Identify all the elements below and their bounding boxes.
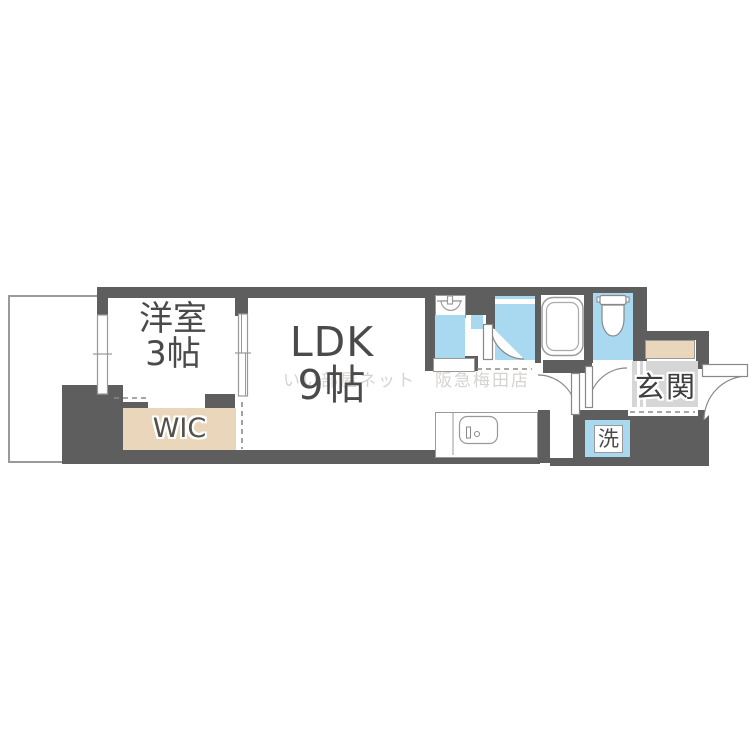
entrance-door-icon: [703, 365, 749, 421]
bathtub-room-floor: [541, 295, 584, 360]
laundry-label: 洗: [594, 426, 623, 454]
ldk-name: LDK: [248, 321, 416, 364]
wall-segment: [425, 287, 435, 363]
wic-label: WIC: [123, 415, 236, 443]
wall-segment: [465, 287, 495, 315]
hall-pocket-floor: [550, 410, 573, 458]
wall-segment: [538, 410, 550, 463]
ldk-label: LDK 9帖: [248, 321, 416, 406]
wall-segment: [205, 394, 235, 409]
entrance-step-band: [628, 407, 698, 416]
shoe-cabinet: [645, 340, 695, 359]
washroom-floor: [435, 315, 465, 360]
ldk-size: 9帖: [248, 364, 416, 407]
bath-anteroom-floor: [495, 296, 535, 360]
wall-segment: [584, 287, 593, 363]
bath-door-rail: [495, 299, 535, 304]
toilet-floor: [593, 293, 633, 360]
bedroom-name: 洋室: [106, 302, 240, 337]
washroom-floor-step: [471, 315, 483, 329]
wall-segment: [486, 313, 495, 329]
bedroom-wic-opening: [150, 394, 205, 408]
floorplan-canvas: いい部屋ネット 阪急梅田店 洋室 3帖 LDK 9帖 WIC 玄関 洗: [0, 0, 750, 750]
bedroom-size: 3帖: [106, 337, 240, 372]
entrance-label: 玄関: [628, 372, 704, 402]
bedroom-label: 洋室 3帖: [106, 302, 240, 373]
wall-segment: [543, 360, 592, 373]
hall-door-icon: [538, 374, 580, 415]
kitchen-counter: [435, 412, 538, 458]
